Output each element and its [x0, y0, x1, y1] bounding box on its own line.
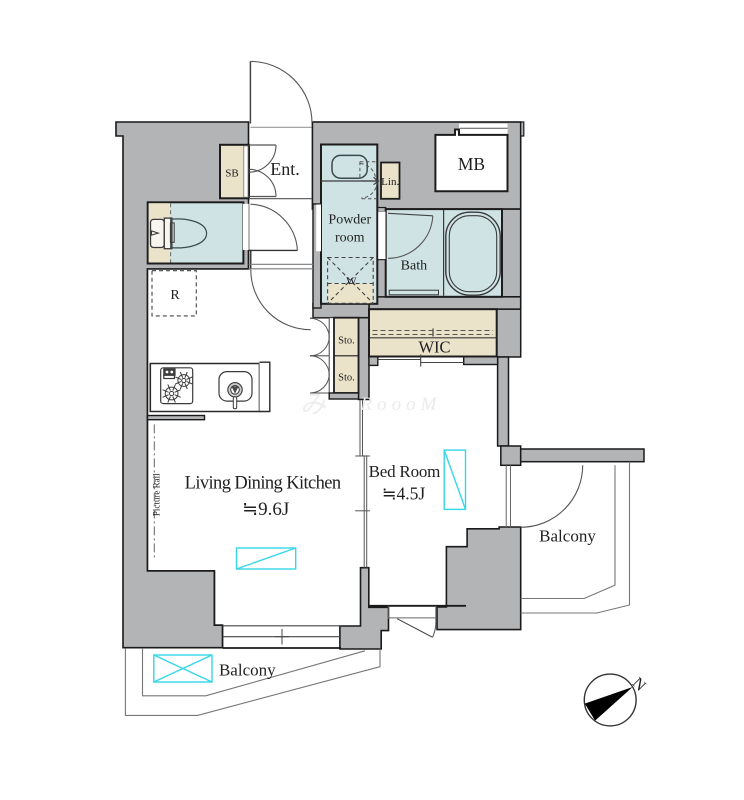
- svg-text:room: room: [335, 231, 365, 246]
- svg-text:Picture Rail: Picture Rail: [152, 473, 162, 516]
- svg-text:SB: SB: [225, 168, 238, 180]
- svg-text:Balcony: Balcony: [219, 661, 276, 680]
- svg-text:Living Dining Kitchen: Living Dining Kitchen: [185, 474, 341, 494]
- svg-text:MB: MB: [458, 154, 485, 174]
- svg-text:Balcony: Balcony: [539, 527, 596, 546]
- svg-text:Bath: Bath: [401, 259, 427, 274]
- svg-text:み: み: [300, 390, 327, 419]
- svg-text:Sto.: Sto.: [338, 335, 355, 346]
- svg-text:RoooM: RoooM: [360, 394, 442, 415]
- svg-text:R: R: [170, 288, 180, 303]
- svg-text:WIC: WIC: [418, 338, 450, 357]
- svg-text:≒9.6J: ≒9.6J: [242, 499, 289, 520]
- svg-text:Lin.: Lin.: [381, 176, 399, 188]
- svg-text:Bed Room: Bed Room: [369, 462, 441, 481]
- svg-text:≒4.5J: ≒4.5J: [382, 484, 426, 504]
- svg-text:Powder: Powder: [328, 213, 371, 228]
- svg-text:W: W: [346, 275, 357, 287]
- svg-text:Ent.: Ent.: [270, 159, 300, 179]
- svg-text:Sto.: Sto.: [338, 373, 355, 384]
